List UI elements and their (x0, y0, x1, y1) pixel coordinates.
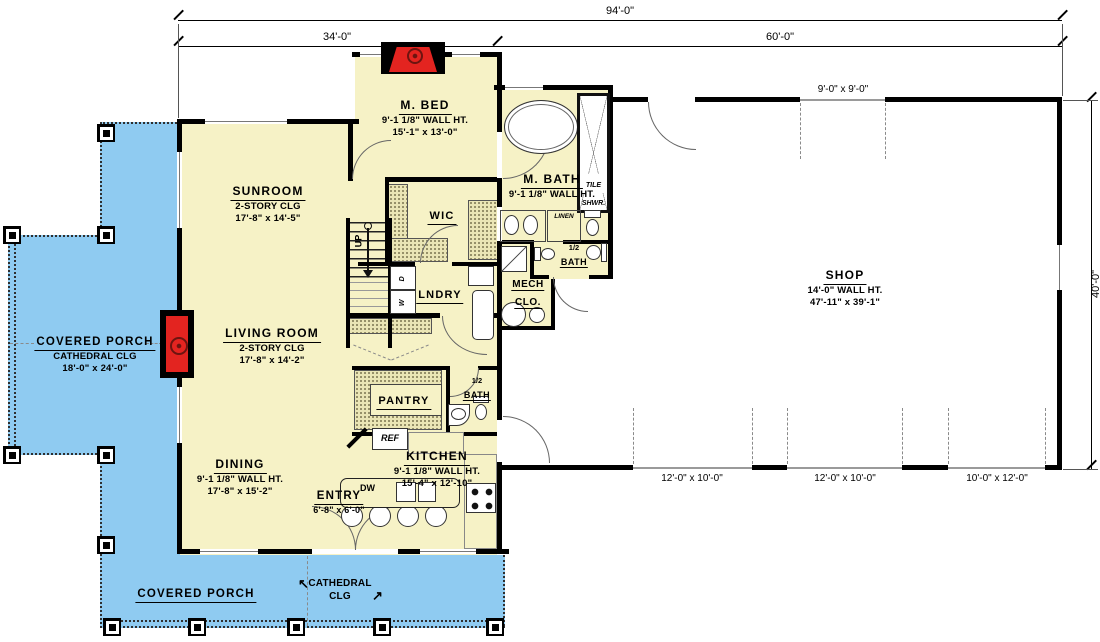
porch-post (287, 618, 305, 636)
fireplace-flue-icon (170, 337, 188, 355)
wall-segment (497, 326, 555, 330)
room-name: WIC (428, 210, 457, 225)
extension-line (1062, 24, 1063, 96)
window (420, 549, 476, 554)
window (205, 119, 287, 124)
room-size: 17'-8" x 15'-2" (197, 486, 283, 498)
dimension-tick (1057, 10, 1067, 20)
room-label-covered-porch-bottom: COVERED PORCH (135, 584, 256, 603)
dimension-line (178, 20, 1062, 21)
dryer-label: D (399, 267, 407, 291)
wall-segment (346, 218, 350, 348)
room-size: 17'-8" x 14'-2" (223, 355, 321, 367)
ridge-dash (10, 343, 34, 344)
washer-label: W (399, 291, 407, 315)
room-name: DINING (213, 458, 266, 474)
room-name: M. BED (398, 99, 451, 115)
linen-cabinet: LINEN (547, 210, 581, 242)
stool (425, 505, 447, 527)
room-label-pantry: PANTRY (376, 391, 431, 410)
room-name: SUNROOM (230, 185, 305, 201)
room-name: BATH (463, 390, 491, 401)
porch-post (97, 124, 115, 142)
ceiling-note-line: CATHEDRAL (308, 578, 371, 591)
ref-label: REF (373, 433, 407, 443)
dim-garage-door-2: 12'-0" x 10'-0" (814, 473, 876, 484)
room-label-kitchen: KITCHEN 9'-1 1/8" WALL HT. 15'-4" x 12'-… (394, 447, 480, 490)
ridge-arrow-icon: ↖ (298, 576, 309, 592)
dim-house-width: 34'-0" (323, 31, 351, 43)
stair-arrow-origin (364, 222, 372, 230)
room-label-shop: SHOP 14'-0" WALL HT. 47'-11" x 39'-1" (807, 266, 882, 309)
window (177, 152, 182, 228)
extension-line (1063, 100, 1098, 101)
room-size: 17'-8" x 14'-5" (230, 213, 305, 225)
room-label-lndry: LNDRY (416, 285, 463, 304)
room-label-half-bath-upper: 1/2 BATH (560, 243, 588, 270)
room-label-dining: DINING 9'-1 1/8" WALL HT. 17'-8" x 15'-2… (197, 455, 283, 498)
pedestal-sink (586, 245, 601, 260)
room-wall-ht: 9'-1 1/8" WALL HT. (394, 466, 480, 478)
ridge-arrow-icon: ↗ (372, 588, 383, 604)
room-name: M. BATH (521, 173, 583, 189)
dimension-line (178, 46, 1062, 47)
toilet-bowl (475, 404, 487, 420)
tile-shower-text: SHWR. (582, 200, 605, 207)
room-name: BATH (560, 257, 588, 268)
dim-garage-door-1: 12'-0" x 10'-0" (661, 473, 723, 484)
door-track (800, 103, 801, 159)
sink (451, 408, 466, 420)
door-opening (497, 420, 502, 462)
room-wall-ht: 14'-0" WALL HT. (807, 285, 882, 297)
porch-post (3, 226, 21, 244)
room-name: 1/2 (463, 376, 491, 385)
stair-arrow-head-icon (363, 270, 373, 278)
furnace (501, 246, 527, 272)
porch-post (103, 618, 121, 636)
dryer: D (390, 266, 416, 290)
dim-shop-depth: 40'-0" (1090, 270, 1100, 298)
room-wall-ht: 9'-1 1/8" WALL HT. (382, 115, 468, 127)
room-wall-ht: 9'-1 1/8" WALL HT. (197, 474, 283, 486)
toilet-tank (534, 247, 541, 261)
room-label-wic: WIC (428, 206, 457, 225)
door-track (1045, 408, 1046, 464)
room-name: LIVING ROOM (223, 327, 321, 343)
stool (369, 505, 391, 527)
porch-edge (8, 453, 100, 455)
room-label-covered-porch-left: COVERED PORCH CATHEDRAL CLG 18'-0" x 24'… (34, 332, 155, 375)
porch-post (373, 618, 391, 636)
washer: W (390, 290, 416, 314)
window (200, 549, 258, 554)
dimension-tick (492, 36, 502, 46)
door-arc (553, 277, 588, 312)
window (1057, 245, 1062, 290)
wall-segment (385, 181, 389, 262)
overhead-door-panel (787, 467, 902, 469)
room-label-mech-clo: MECH CLO. (511, 274, 544, 310)
overhead-door-panel (948, 467, 1045, 469)
dimension-tick (173, 10, 183, 20)
window (177, 387, 182, 443)
porch-ceiling-note: CATHEDRAL CLG (308, 578, 371, 603)
room-name: KITCHEN (404, 450, 470, 466)
door-arc (648, 102, 696, 150)
toilet-bowl (541, 248, 555, 260)
dim-overall-width: 94'-0" (606, 5, 634, 17)
porch-edge (503, 555, 505, 626)
laundry-sink (468, 266, 494, 286)
window (505, 85, 543, 90)
room-name: COVERED PORCH (34, 336, 155, 351)
room-label-m-bath: M. BATH 9'-1 1/8" WALL HT. (509, 170, 595, 201)
wall-segment (589, 275, 613, 279)
door-track (633, 408, 634, 464)
room-size: 47'-11" x 39'-1" (807, 297, 882, 309)
door-arc (503, 416, 550, 463)
room-label-sunroom: SUNROOM 2-STORY CLG 17'-8" x 14'-5" (230, 182, 305, 225)
toilet-bowl (586, 219, 599, 236)
floor-plan: TILE SHWR. LINEN D W REF DW (0, 0, 1100, 642)
room-label-living-room: LIVING ROOM 2-STORY CLG 17'-8" x 14'-2" (223, 324, 321, 367)
room-name: MECH (511, 279, 544, 291)
porch-post (97, 536, 115, 554)
dim-shop-width: 60'-0" (766, 31, 794, 43)
laundry-tub (472, 290, 494, 340)
linen-label: LINEN (548, 213, 580, 220)
wall-segment (478, 366, 501, 370)
door-opening (497, 132, 502, 178)
porch-post (97, 226, 115, 244)
room-name: COVERED PORCH (135, 588, 256, 603)
room-name: PANTRY (376, 395, 431, 410)
room-name: 1/2 (560, 243, 588, 252)
room-ceiling: 2-STORY CLG (223, 343, 321, 355)
room-name: LNDRY (416, 289, 463, 304)
wall-segment (352, 366, 450, 370)
door-track (885, 103, 886, 159)
dim-garage-door-3: 10'-0" x 12'-0" (966, 473, 1028, 484)
door-track (752, 408, 753, 464)
bathtub (504, 100, 578, 154)
door-track (902, 408, 903, 464)
room-label-m-bed: M. BED 9'-1 1/8" WALL HT. 15'-1" x 13'-0… (382, 96, 468, 139)
porch-edge (8, 235, 10, 455)
porch-post (486, 618, 504, 636)
extension-line (178, 24, 179, 118)
porch-post (188, 618, 206, 636)
room-size: 15'-4" x 12'-10" (394, 478, 480, 490)
wall-segment (385, 177, 502, 182)
porch-post (97, 446, 115, 464)
sink (523, 215, 538, 235)
door-track (787, 408, 788, 464)
extension-line (1063, 469, 1098, 470)
door-track (948, 408, 949, 464)
overhead-door-panel (800, 99, 885, 101)
sink-backsplash (601, 243, 607, 262)
room-size: 6'-8" x 6'-0" (313, 505, 364, 516)
room-ceiling: 2-STORY CLG (230, 201, 305, 213)
porch-edge-inner (14, 241, 16, 449)
fireplace-flue-icon (407, 48, 423, 64)
ceiling-note-line: CLG (308, 591, 371, 604)
wall-segment (497, 52, 502, 554)
porch-edge (8, 235, 100, 237)
room-name: SHOP (824, 269, 867, 285)
room-label-entry: ENTRY 6'-8" x 6'-0" (313, 486, 364, 516)
toilet-tank (584, 210, 601, 218)
window (452, 52, 480, 57)
overhead-door-panel (633, 467, 752, 469)
stool (397, 505, 419, 527)
room-ceiling: CATHEDRAL CLG (34, 351, 155, 363)
room-name: CLO. (514, 297, 542, 309)
dim-shop-top-door: 9'-0" x 9'-0" (818, 84, 868, 95)
room-size: 18'-0" x 24'-0" (34, 363, 155, 375)
room-size: 15'-1" x 13'-0" (382, 127, 468, 139)
porch-post (3, 446, 21, 464)
sink (504, 215, 519, 235)
room-name: ENTRY (315, 490, 364, 505)
room-label-half-bath-lower: 1/2 BATH (463, 376, 491, 403)
up-label: UP (353, 235, 363, 248)
stairs-lower (350, 282, 388, 314)
wic-shelf (468, 200, 499, 260)
room-wall-ht: 9'-1 1/8" WALL HT. (509, 189, 595, 201)
